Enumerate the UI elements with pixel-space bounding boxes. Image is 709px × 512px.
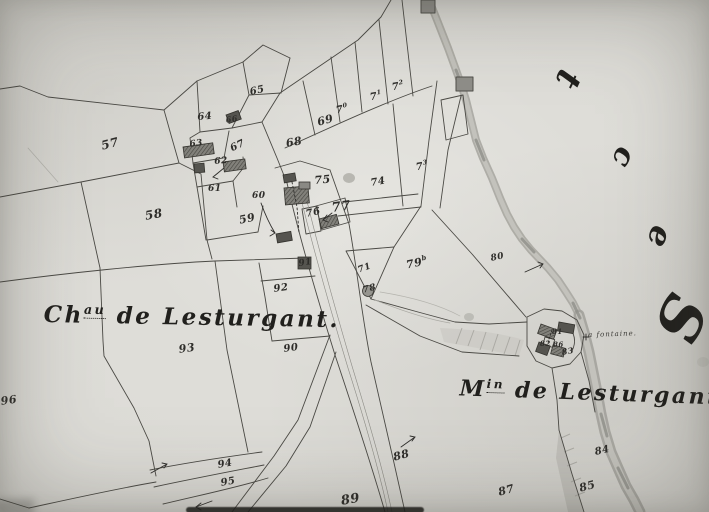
arrow [401, 436, 415, 447]
cadastral-map-scan: 5758596061626364656667686970717273747576… [0, 0, 709, 512]
chateau-rest: de Lesturgant [106, 302, 330, 333]
parcel-number-70: 70 [335, 103, 349, 116]
parcel-number-64: 64 [197, 112, 213, 123]
parcel-number-89: 89 [340, 492, 361, 508]
parcel-number-72: 72 [391, 80, 405, 93]
parcel-number-82: 82 [540, 340, 551, 347]
parcel-number-75: 75 [314, 174, 331, 186]
stream [421, 0, 640, 512]
moulin-superscript: in [486, 377, 505, 394]
parcel-number-60: 60 [252, 192, 266, 201]
parcel-number-90: 90 [283, 343, 299, 355]
parcel-number-81: 81 [552, 328, 563, 335]
parcel-number-68: 68 [285, 135, 303, 149]
parcel-number-91: 91 [298, 258, 313, 269]
building [283, 173, 296, 183]
parcel-number-63: 63 [189, 139, 204, 150]
map-linework [0, 0, 709, 512]
building [319, 214, 339, 228]
parcel-number-77: 77 [331, 199, 352, 215]
scan-edge-artifact [186, 507, 424, 512]
parcel-number-66: 66 [225, 114, 238, 124]
roads [232, 170, 405, 512]
building [276, 231, 292, 242]
chateau-superscript: au [84, 302, 107, 319]
lane-west-edge [232, 335, 330, 512]
parcel-number-61: 61 [208, 185, 222, 194]
chateau-period: . [329, 306, 340, 333]
lane-east-edge [248, 352, 336, 512]
chateau-prefix: Ch [44, 301, 84, 329]
arrow [261, 203, 275, 236]
parcel-number-96: 96 [0, 394, 18, 407]
building [194, 163, 205, 173]
parcel-boundaries [0, 0, 595, 512]
scan-corner-shadow [0, 499, 34, 512]
arrow [213, 168, 224, 179]
parcel-number-73: 73 [415, 160, 429, 173]
parcel-number-59: 59 [238, 212, 256, 226]
parcel-number-58: 58 [144, 207, 164, 222]
parcel-number-92: 92 [273, 283, 289, 295]
moulin-prefix: M [459, 375, 487, 402]
parcel-number-62: 62 [214, 157, 228, 167]
parcel-number-83: 83 [561, 346, 574, 356]
parcel-number-93: 93 [178, 342, 196, 355]
road-main-west-edge [287, 183, 385, 512]
building [299, 182, 310, 189]
parcel-number-71: 71 [369, 90, 383, 103]
